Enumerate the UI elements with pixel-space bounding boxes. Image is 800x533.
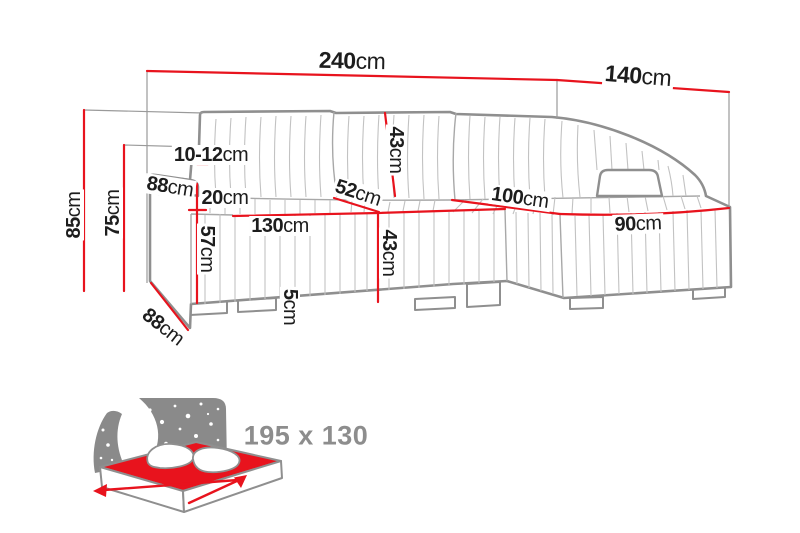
dim-unit: cm <box>196 247 218 273</box>
right-armrest <box>597 170 662 196</box>
dim-value: 20 <box>202 187 223 209</box>
dim-unit: cm <box>522 188 550 213</box>
dim-value: 43 <box>378 230 400 251</box>
dim-label-43cm-backrest: 43cm <box>386 125 406 176</box>
dim-unit: cm <box>378 251 400 277</box>
dim-value: 240 <box>318 47 355 74</box>
dim-value: 100 <box>490 183 525 209</box>
dim-value: 57 <box>196 226 218 247</box>
dim-label-85cm: 85cm <box>64 190 84 241</box>
dim-unit: cm <box>355 48 385 75</box>
sofa-dimension-diagram: 240cm 140cm 85cm 75cm 10-12cm 88cm 20cm … <box>0 0 800 533</box>
dim-value: 5 <box>279 289 301 300</box>
dim-label-10-12cm: 10-12cm <box>172 145 250 165</box>
dim-unit: cm <box>222 144 248 166</box>
dim-value: 43 <box>385 127 407 148</box>
pillow-left <box>147 444 193 468</box>
dim-unit: cm <box>283 215 309 237</box>
dim-value: 140 <box>604 60 643 89</box>
diagram-canvas <box>0 0 800 533</box>
sleeping-area-size-label: 195 x 130 <box>244 423 369 450</box>
sleeping-area-icon <box>93 398 282 512</box>
dim-unit: cm <box>279 299 301 325</box>
dim-label-43cm-front: 43cm <box>379 228 399 279</box>
dim-label-75cm: 75cm <box>103 188 123 239</box>
dim-value: 75 <box>102 215 124 236</box>
dim-unit: cm <box>641 63 673 91</box>
dim-label-130cm: 130cm <box>249 216 311 236</box>
dim-unit: cm <box>385 148 407 174</box>
dim-label-240cm: 240cm <box>316 49 387 73</box>
dim-unit: cm <box>223 187 249 209</box>
dim-unit: cm <box>635 212 661 235</box>
dim-label-20cm: 20cm <box>200 188 251 208</box>
dim-unit: cm <box>102 190 124 216</box>
dim-label-57cm: 57cm <box>197 224 217 275</box>
dim-value: 130 <box>251 215 283 237</box>
dim-value: 10-12 <box>174 144 223 166</box>
dim-label-5cm: 5cm <box>280 287 300 327</box>
dim-value: 90 <box>614 213 636 236</box>
dim-value: 85 <box>63 217 85 238</box>
dim-unit: cm <box>63 192 85 218</box>
dim-unit: cm <box>166 176 195 202</box>
dim-label-140cm: 140cm <box>602 62 674 90</box>
dim-label-90cm: 90cm <box>612 213 664 235</box>
